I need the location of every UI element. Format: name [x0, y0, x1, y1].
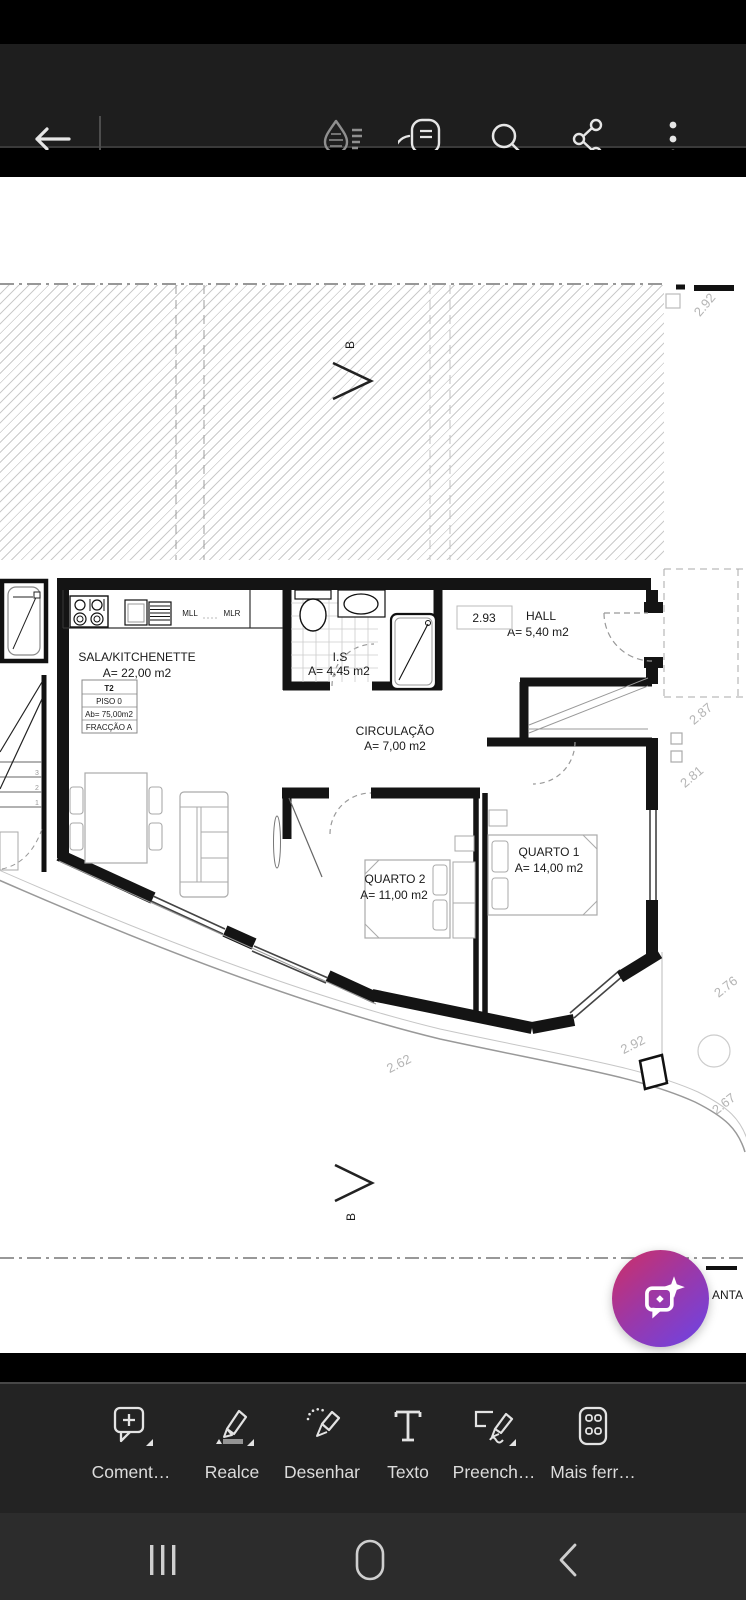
cropped-title-text: ANTA [712, 1288, 743, 1302]
nightstand [489, 810, 507, 826]
room-name: CIRCULAÇÃO [356, 724, 435, 738]
back-nav-icon [548, 1538, 592, 1582]
dim-bottom-right-upper: 2.76 [711, 973, 740, 1000]
ai-assistant-fab[interactable] [612, 1250, 709, 1347]
apartment-walls [57, 578, 663, 1028]
document-gap-top [0, 150, 746, 177]
dim-bottom-left: 2.62 [384, 1051, 413, 1076]
dropdown-corner-icon [146, 1439, 153, 1446]
site-circle [698, 1035, 730, 1067]
fill-sign-icon [468, 1402, 520, 1450]
room-name: QUARTO 1 [519, 845, 580, 859]
room-area: A= 22,00 m2 [103, 666, 172, 680]
tool-label: Preench… [453, 1462, 536, 1483]
unit-floor: PISO 0 [96, 697, 122, 706]
unit-type: T2 [104, 684, 114, 693]
recents-button[interactable] [141, 1538, 185, 1582]
toilet-tank [295, 590, 331, 599]
dim-top-right: 2.92 [691, 290, 719, 319]
pillow [492, 878, 508, 909]
stair-number: 3 [35, 770, 39, 777]
highlight-icon [206, 1402, 258, 1450]
dim-right-upper: 2.87 [686, 700, 715, 728]
room-area: A= 5,40 m2 [507, 625, 569, 639]
section-marker-bottom: B [335, 1165, 372, 1221]
tool-label: Desenhar [284, 1462, 360, 1483]
pillow [433, 865, 447, 895]
tool-label: Realce [205, 1462, 259, 1483]
status-bar [0, 0, 746, 44]
annotation-toolbar: Coment… Realce Desenhar Te [0, 1382, 746, 1513]
dining-table [85, 773, 147, 863]
dim-bottom-mid: 2.92 [618, 1032, 647, 1057]
tool-label: Texto [387, 1462, 429, 1483]
dim-right-lower: 2.81 [677, 763, 706, 791]
chair [149, 787, 162, 814]
room-name: I.S [333, 650, 348, 664]
top-toolbar [0, 44, 746, 148]
radiator [274, 816, 281, 868]
stairwell: 3 2 1 [0, 675, 44, 872]
dim-hall: 2.93 [472, 611, 496, 625]
nightstand [453, 903, 475, 938]
kitchen: MLL MLR [63, 590, 283, 628]
stair-number: 1 [35, 800, 39, 807]
home-button[interactable] [348, 1538, 392, 1582]
section-label: B [343, 341, 357, 349]
android-navigation-bar [0, 1513, 746, 1600]
room-name: HALL [526, 609, 556, 623]
dropdown-corner-icon [509, 1439, 516, 1446]
tool-label: Mais ferr… [550, 1462, 636, 1483]
stair-number: 2 [35, 785, 39, 792]
unit-area: Ab= 75,00m2 [85, 710, 133, 719]
room-area: A= 4,45 m2 [308, 664, 370, 678]
unit-fraction: FRACÇÃO A [86, 723, 133, 732]
tool-fill-sign[interactable]: Preench… [439, 1402, 549, 1483]
tool-label: Coment… [92, 1462, 171, 1483]
nightstand [453, 862, 475, 903]
room-area: A= 7,00 m2 [364, 739, 426, 753]
ai-assistant-chat-sparkle-icon [635, 1273, 687, 1325]
text-icon [382, 1402, 434, 1450]
dimensions: 2.93 2.92 2.87 2.81 2.62 2.92 2.76 2.67 [384, 290, 740, 1117]
dropdown-corner-icon [247, 1439, 254, 1446]
kitchen-label-mll: MLL [182, 609, 198, 618]
pillow [492, 841, 508, 872]
acrobat-mobile-screen: B 3 2 1 [0, 0, 746, 1600]
lift-shaft [2, 581, 46, 661]
back-nav-button[interactable] [548, 1538, 592, 1582]
room-name: SALA/KITCHENETTE [78, 650, 195, 664]
room-area: A= 14,00 m2 [515, 861, 584, 875]
pillow [433, 900, 447, 930]
tool-comment[interactable]: Coment… [76, 1402, 186, 1483]
nightstand [455, 836, 474, 851]
toilet [300, 599, 326, 631]
recents-icon [141, 1538, 185, 1582]
chair [70, 823, 83, 850]
draw-icon [296, 1402, 348, 1450]
pdf-canvas[interactable]: B 3 2 1 [0, 177, 746, 1353]
chair [70, 787, 83, 814]
document-gap-bottom [0, 1353, 746, 1382]
chair [149, 823, 162, 850]
home-icon [348, 1538, 392, 1582]
section-label: B [344, 1213, 358, 1221]
more-tools-icon [567, 1402, 619, 1450]
unit-info-box: T2 PISO 0 Ab= 75,00m2 FRACÇÃO A [82, 680, 137, 733]
comment-icon [105, 1402, 157, 1450]
floor-plan: B 3 2 1 [0, 177, 746, 1353]
column [640, 1055, 667, 1089]
section-marker-top: B [333, 341, 371, 399]
tool-more-tools[interactable]: Mais ferr… [538, 1402, 648, 1483]
room-area: A= 11,00 m2 [360, 888, 428, 902]
room-name: QUARTO 2 [365, 872, 426, 886]
kitchen-label-mlr: MLR [224, 609, 241, 618]
sofa [180, 792, 228, 897]
